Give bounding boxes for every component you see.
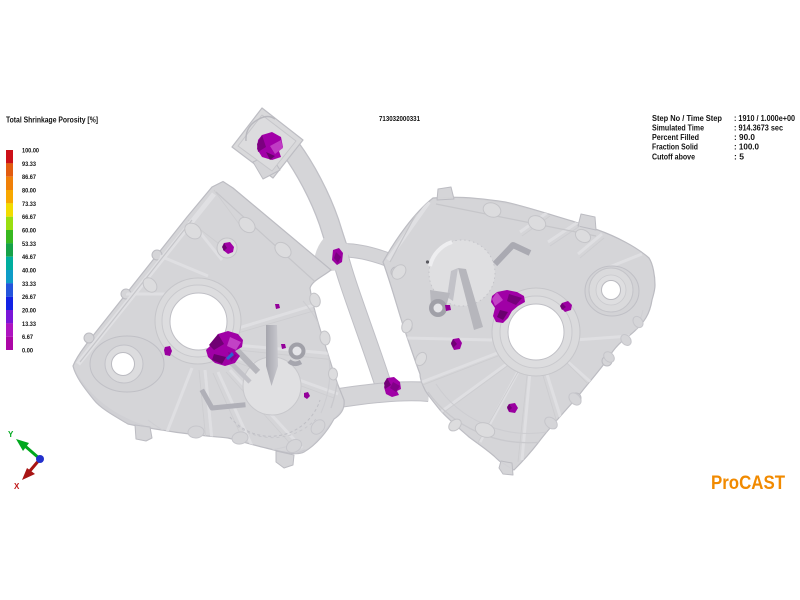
- svg-text:Y: Y: [8, 430, 14, 439]
- svg-text:46.67: 46.67: [22, 255, 37, 261]
- svg-text:X: X: [14, 482, 20, 491]
- svg-text:26.67: 26.67: [22, 295, 37, 301]
- svg-text:20.00: 20.00: [22, 309, 37, 315]
- svg-text:: 1910 / 1.000e+00: : 1910 / 1.000e+00: [734, 114, 795, 123]
- svg-text:Total Shrinkage Porosity [%]: Total Shrinkage Porosity [%]: [6, 115, 98, 124]
- svg-text:713032000331: 713032000331: [379, 114, 420, 123]
- svg-text:Cutoff above: Cutoff above: [652, 153, 695, 162]
- svg-text:40.00: 40.00: [22, 269, 37, 275]
- svg-text:73.33: 73.33: [22, 202, 37, 208]
- svg-text:ProCAST: ProCAST: [711, 473, 785, 494]
- svg-text:Fraction Solid: Fraction Solid: [652, 143, 698, 152]
- svg-text:6.67: 6.67: [22, 335, 34, 341]
- svg-text:Percent Filled: Percent Filled: [652, 133, 699, 142]
- svg-text:100.00: 100.00: [22, 149, 40, 155]
- svg-text:: 914.3673 sec: : 914.3673 sec: [734, 124, 783, 133]
- svg-text:: 90.0: : 90.0: [734, 133, 756, 142]
- svg-text:93.33: 93.33: [22, 162, 37, 168]
- svg-text:86.67: 86.67: [22, 175, 37, 181]
- svg-text:60.00: 60.00: [22, 229, 37, 235]
- svg-text:Step No / Time Step: Step No / Time Step: [652, 114, 722, 123]
- svg-text:13.33: 13.33: [22, 322, 37, 328]
- svg-text:: 5: : 5: [734, 153, 745, 162]
- svg-text:80.00: 80.00: [22, 189, 37, 195]
- svg-text:Simulated Time: Simulated Time: [652, 124, 704, 133]
- svg-text:53.33: 53.33: [22, 242, 37, 248]
- svg-text:: 100.0: : 100.0: [734, 143, 760, 152]
- svg-text:33.33: 33.33: [22, 282, 37, 288]
- svg-text:66.67: 66.67: [22, 215, 37, 221]
- svg-text:0.00: 0.00: [22, 349, 34, 355]
